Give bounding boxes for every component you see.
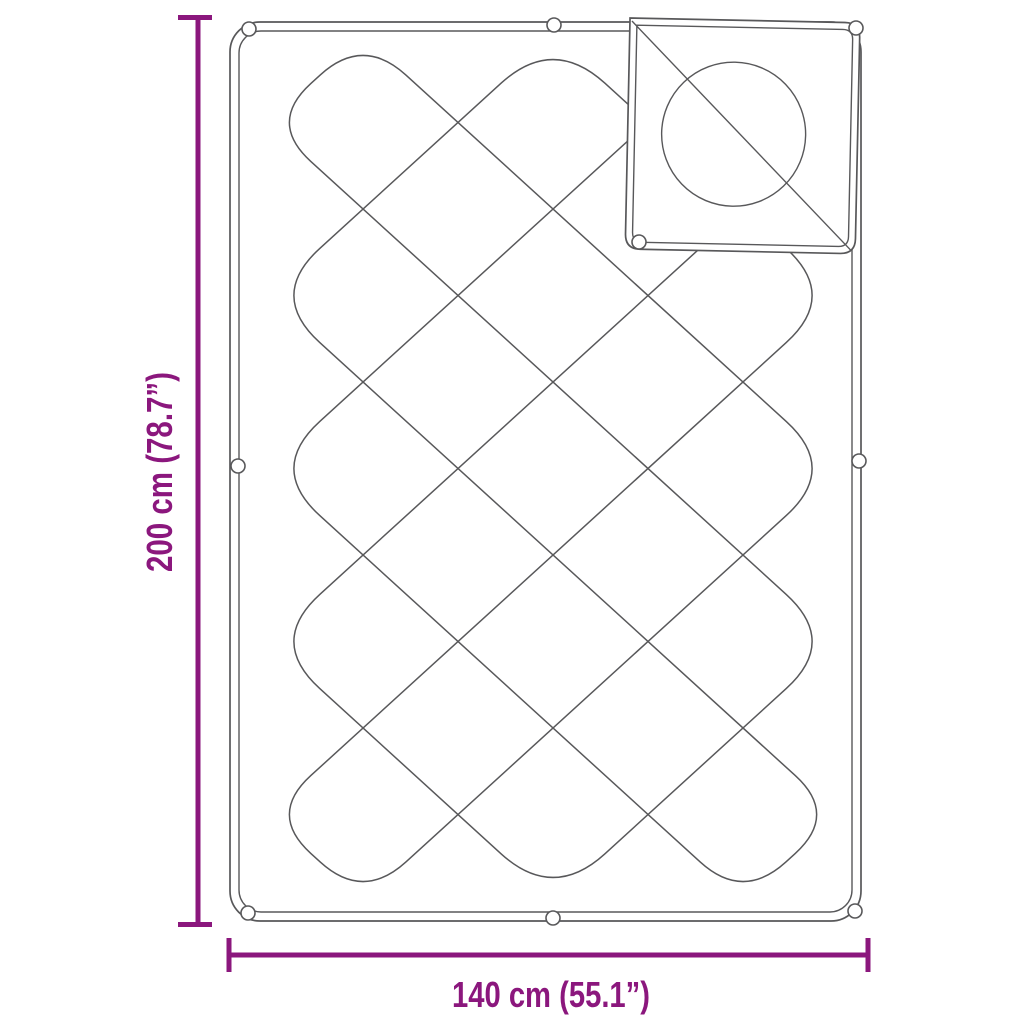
height-dimension: 200 cm (78.7”) [139, 15, 212, 927]
height-dimension-line [196, 15, 201, 927]
grommet-icon [632, 235, 646, 249]
grommet-icon [546, 911, 560, 925]
width-dimension: 140 cm (55.1”) [227, 938, 871, 1015]
grommet-icon [547, 18, 561, 32]
flap-outer-edge [625, 18, 860, 254]
grommet-icon [849, 21, 863, 35]
height-dimension-label: 200 cm (78.7”) [139, 372, 180, 572]
height-dimension-cap-bottom [178, 922, 212, 927]
diagram-canvas: 200 cm (78.7”) 140 cm (55.1”) [0, 0, 1024, 1024]
width-dimension-label: 140 cm (55.1”) [452, 974, 650, 1015]
product-diagram: 200 cm (78.7”) 140 cm (55.1”) [0, 0, 1024, 1024]
grommet-icon [852, 454, 866, 468]
grommet-icon [242, 22, 256, 36]
grommet-icon [848, 904, 862, 918]
width-dimension-cap-right [866, 938, 871, 972]
folded-corner-flap [625, 18, 860, 254]
grommet-icon [241, 906, 255, 920]
width-dimension-cap-left [227, 938, 232, 972]
height-dimension-cap-top [178, 15, 212, 20]
width-dimension-line [229, 953, 868, 958]
grommet-icon [231, 459, 245, 473]
